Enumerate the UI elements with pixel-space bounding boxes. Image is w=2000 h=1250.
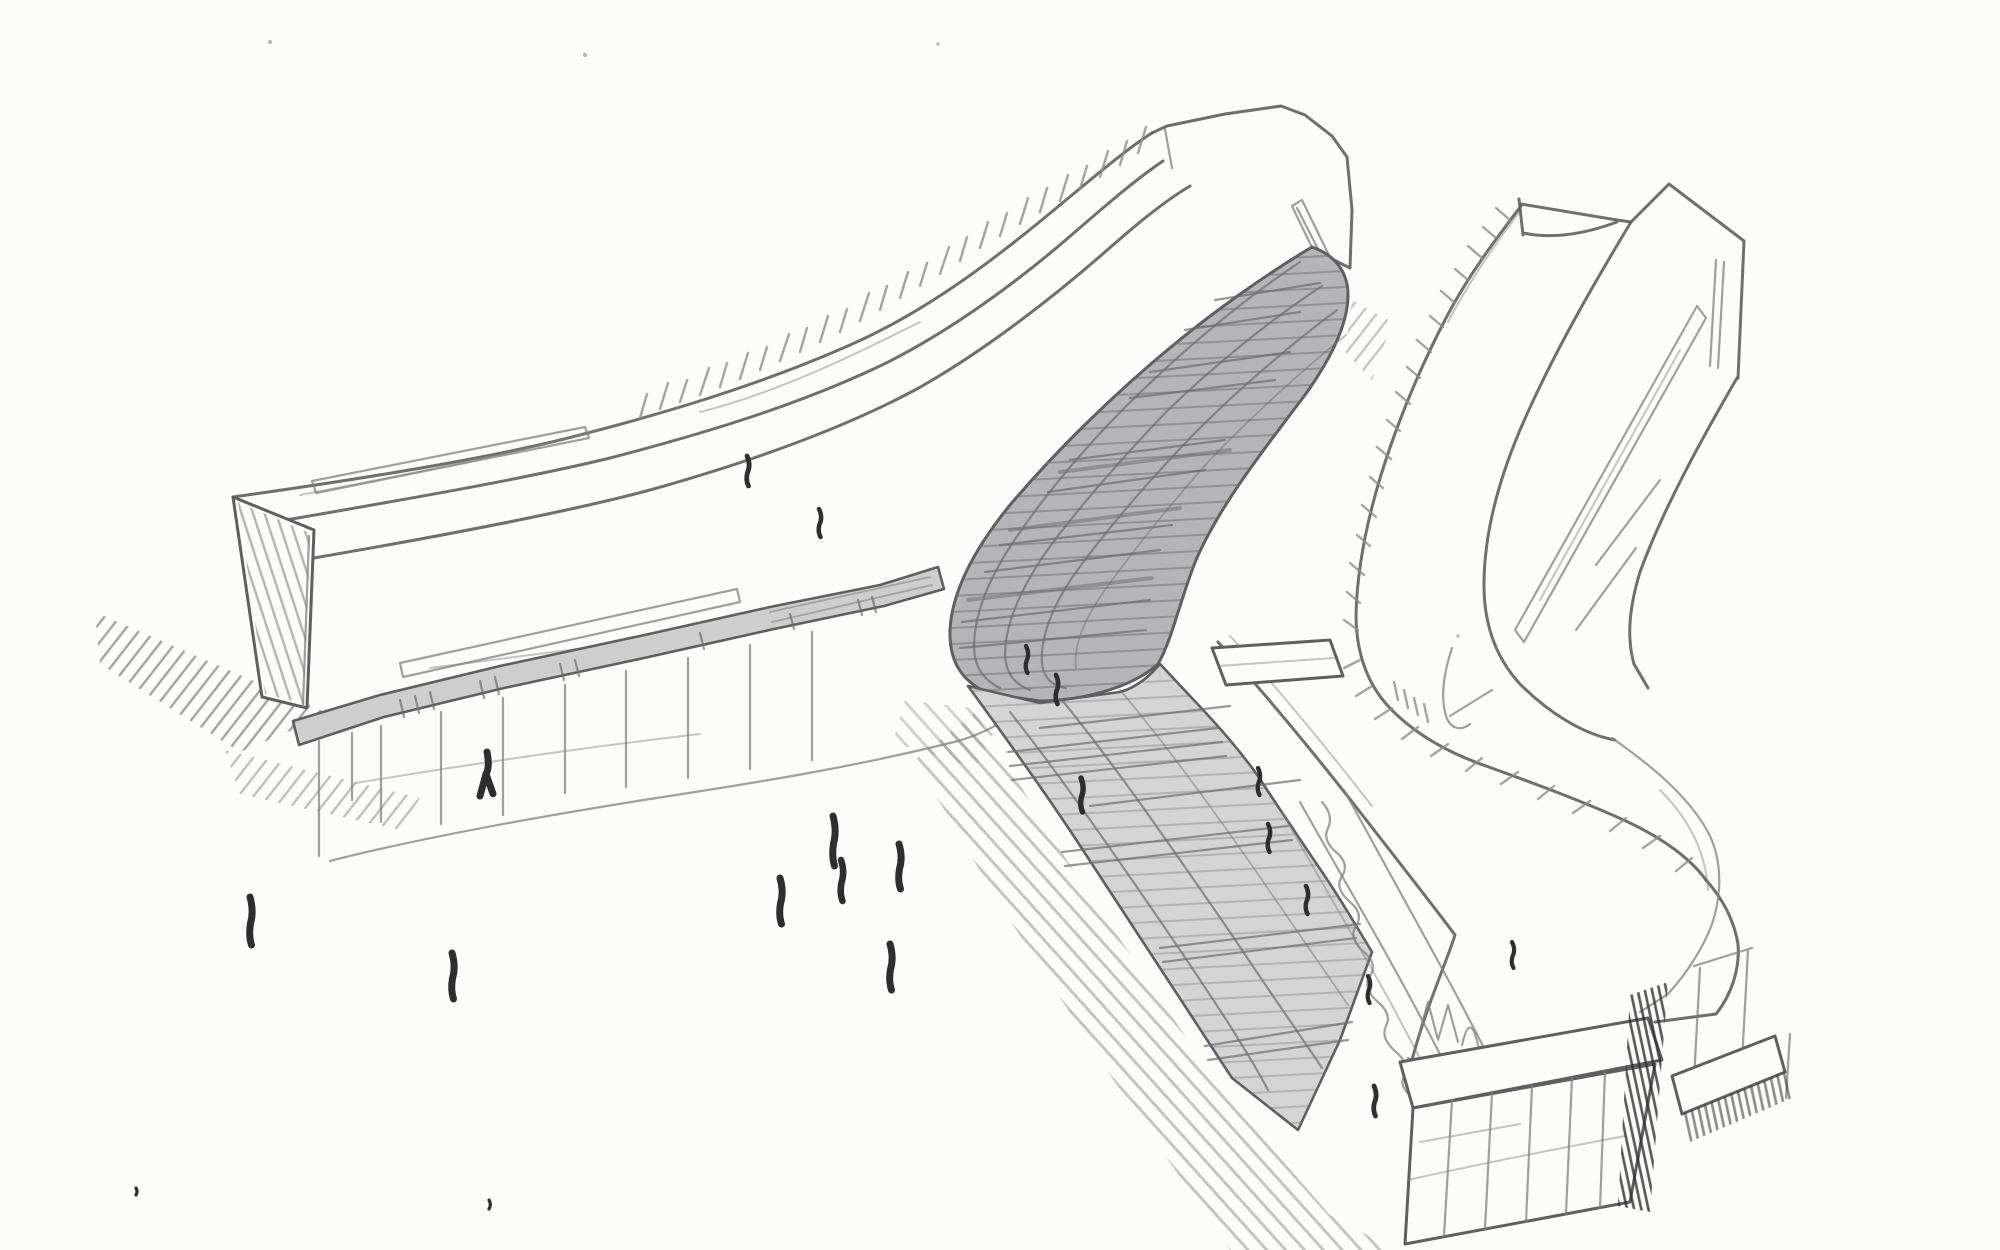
left-wing-outer-roof-edge-double (300, 322, 920, 495)
right-wing-window-strip-inner (1540, 350, 1680, 600)
sketch-page (0, 0, 2000, 1250)
right-wing-left-prow (1519, 199, 1631, 236)
person-figure (1026, 646, 1028, 673)
paper-speck (936, 42, 940, 46)
paper-speck (583, 53, 587, 57)
person-figure (1512, 942, 1514, 968)
entrance-canopy (293, 567, 944, 745)
right-wing-outer-edge (1356, 206, 1706, 880)
sketch-canvas (0, 0, 2000, 1250)
right-wing-bottom-hook (1443, 648, 1492, 728)
end-shaded-side-face (1618, 982, 1668, 1212)
left-wing-end-face-lines (1165, 129, 1172, 168)
person-figure (1306, 886, 1308, 914)
canopy-band (293, 567, 944, 745)
shadow-under-canopy (225, 750, 420, 830)
right-wing-ridge-line (1484, 222, 1631, 740)
left-wing-outer-roof-edge (233, 133, 1152, 497)
left-wing-roof-skylight-slot (312, 427, 589, 493)
right-wing-gable-slot (1710, 260, 1724, 368)
person-figure (136, 1188, 137, 1195)
left-wing-prow-end (1152, 106, 1352, 268)
person-figure (819, 509, 821, 537)
person-figure (1056, 675, 1058, 704)
person-figure (250, 897, 252, 945)
person-figure (480, 752, 493, 796)
person-figure (833, 816, 835, 866)
courtyard-right-parapet-outer (1655, 880, 1738, 1022)
left-wing-parapet-line (263, 161, 1163, 524)
person-figure (780, 878, 782, 924)
paper-speck (1456, 634, 1459, 637)
person-figure (1368, 976, 1370, 1003)
right-wing-edge-hatch-fringe (1344, 208, 1692, 871)
colonnade-walkway-line (356, 734, 700, 783)
left-wing-gable (233, 497, 314, 708)
right-wing (1344, 184, 1744, 880)
shadow-between-wings (1345, 300, 1392, 380)
annex-block (1672, 948, 1792, 1142)
person-figure (452, 953, 454, 999)
person-figure (1374, 1086, 1376, 1116)
left-wing-edge-hatch-ticks (640, 127, 1146, 418)
person-figure (841, 860, 843, 901)
paper-speck (1047, 462, 1050, 465)
person-figure (899, 844, 901, 889)
end-facade (1400, 982, 1668, 1244)
person-figure (1081, 778, 1083, 812)
person-figure (1258, 768, 1260, 795)
person-figure (489, 1200, 490, 1209)
person-figure (747, 456, 749, 486)
paper-speck (268, 40, 272, 44)
person-figure (1268, 824, 1270, 852)
person-figure (890, 944, 892, 990)
